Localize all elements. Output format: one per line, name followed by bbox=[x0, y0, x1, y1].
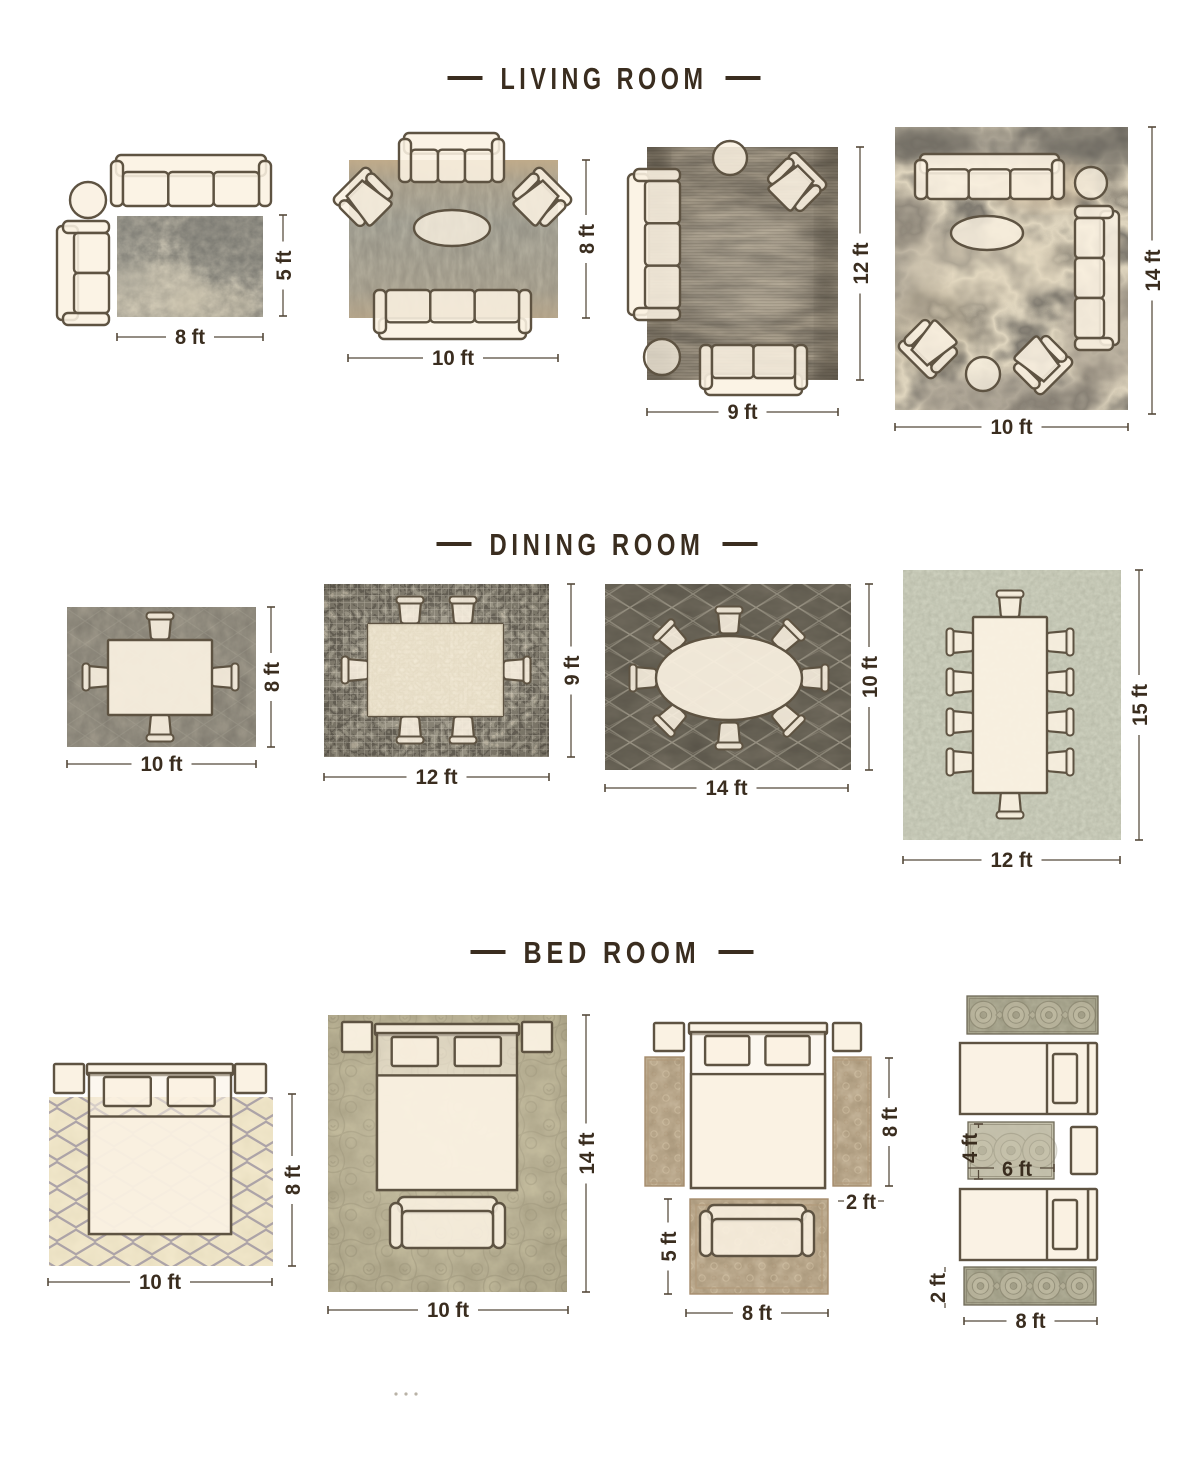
svg-text:10 ft: 10 ft bbox=[139, 1271, 181, 1294]
svg-text:10 ft: 10 ft bbox=[991, 416, 1033, 439]
svg-text:10 ft: 10 ft bbox=[141, 753, 183, 776]
svg-text:10 ft: 10 ft bbox=[427, 1299, 469, 1322]
svg-text:12 ft: 12 ft bbox=[850, 243, 873, 285]
svg-text:BED ROOM: BED ROOM bbox=[524, 935, 701, 970]
svg-text:2 ft: 2 ft bbox=[846, 1191, 876, 1214]
svg-text:DINING ROOM: DINING ROOM bbox=[490, 527, 705, 562]
svg-text:8 ft: 8 ft bbox=[261, 662, 284, 692]
svg-text:10 ft: 10 ft bbox=[859, 656, 882, 698]
svg-text:14 ft: 14 ft bbox=[576, 1133, 599, 1175]
svg-text:10 ft: 10 ft bbox=[432, 347, 474, 370]
svg-text:4 ft: 4 ft bbox=[959, 1133, 982, 1163]
svg-text:8 ft: 8 ft bbox=[1016, 1310, 1046, 1333]
svg-text:8 ft: 8 ft bbox=[742, 1302, 772, 1325]
svg-text:9 ft: 9 ft bbox=[561, 655, 584, 685]
svg-text:8 ft: 8 ft bbox=[175, 326, 205, 349]
svg-text:2 ft: 2 ft bbox=[927, 1273, 950, 1303]
svg-text:LIVING ROOM: LIVING ROOM bbox=[501, 61, 708, 96]
svg-text:8 ft: 8 ft bbox=[576, 224, 599, 254]
svg-text:5 ft: 5 ft bbox=[658, 1231, 681, 1261]
svg-text:12 ft: 12 ft bbox=[991, 849, 1033, 872]
svg-text:14 ft: 14 ft bbox=[1142, 250, 1165, 292]
svg-text:9 ft: 9 ft bbox=[728, 401, 758, 424]
svg-text:8 ft: 8 ft bbox=[282, 1165, 305, 1195]
svg-text:6 ft: 6 ft bbox=[1002, 1158, 1032, 1181]
svg-text:12 ft: 12 ft bbox=[416, 766, 458, 789]
svg-text:14 ft: 14 ft bbox=[706, 777, 748, 800]
svg-text:5 ft: 5 ft bbox=[273, 250, 296, 280]
svg-text:8 ft: 8 ft bbox=[879, 1107, 902, 1137]
svg-text:15 ft: 15 ft bbox=[1129, 684, 1152, 726]
